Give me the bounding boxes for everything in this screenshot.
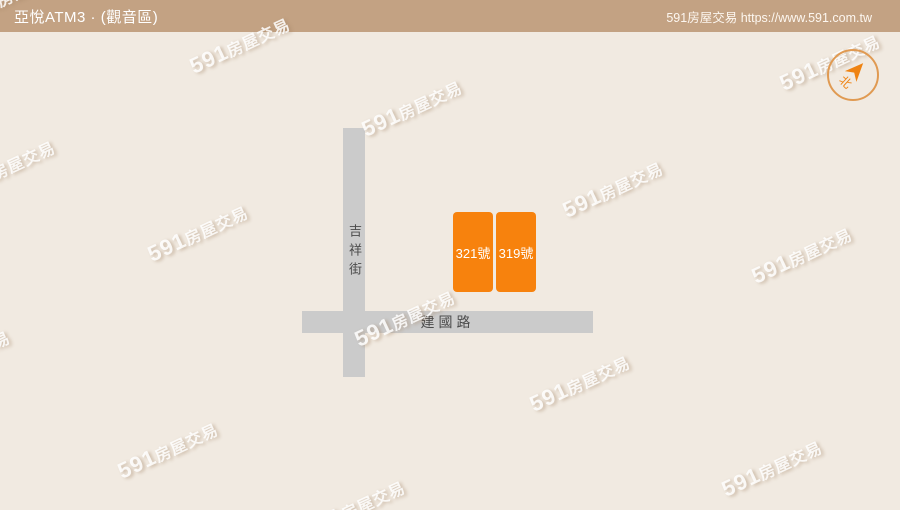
building-321[interactable]: 321號 [453, 212, 493, 292]
compass-rotor: 北 [819, 41, 885, 107]
map-screenshot: 亞悅ATM3 · (觀音區) 591房屋交易 https://www.591.c… [0, 0, 900, 510]
watermark: 591房屋交易 [358, 73, 467, 142]
watermark: 591房屋交易 [559, 154, 668, 223]
watermark: 591房屋交易 [0, 133, 59, 202]
watermark-layer: 591房屋交易591房屋交易591房屋交易591房屋交易591房屋交易591房屋… [0, 0, 900, 510]
watermark: 591房屋交易 [0, 323, 14, 392]
building-319[interactable]: 319號 [496, 212, 536, 292]
watermark: 591房屋交易 [718, 433, 827, 502]
street-jixiang-label: 吉祥街 [343, 224, 365, 281]
title-bar: 亞悅ATM3 · (觀音區) 591房屋交易 https://www.591.c… [0, 0, 900, 32]
building-321-label: 321號 [456, 243, 491, 262]
watermark: 591房屋交易 [144, 198, 253, 267]
site-credit: 591房屋交易 https://www.591.com.tw [666, 7, 872, 26]
street-jixiang: 吉祥街 [343, 128, 365, 377]
compass: 北 [827, 49, 879, 101]
building-319-label: 319號 [499, 243, 534, 262]
watermark: 591房屋交易 [526, 348, 635, 417]
street-jianguo-label: 建國路 [421, 312, 475, 332]
street-jianguo: 建國路 [302, 311, 593, 333]
page-title: 亞悅ATM3 · (觀音區) [14, 6, 158, 27]
watermark: 591房屋交易 [748, 220, 857, 289]
watermark: 591房屋交易 [114, 415, 223, 484]
watermark: 591房屋交易 [301, 473, 410, 510]
